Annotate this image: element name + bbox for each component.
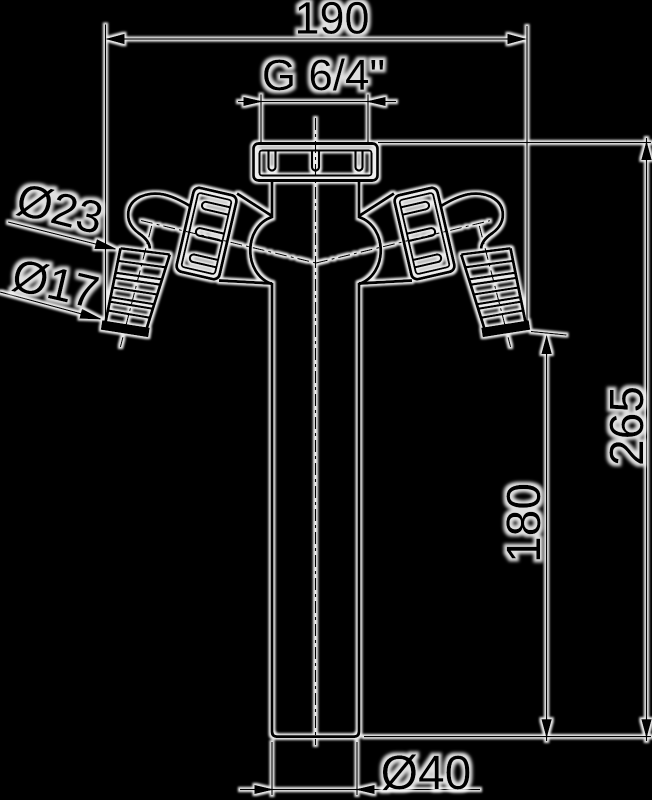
svg-text:265: 265	[601, 386, 652, 466]
svg-text:Ø23: Ø23	[11, 173, 108, 244]
svg-text:190: 190	[294, 0, 369, 44]
svg-text:180: 180	[498, 483, 551, 563]
svg-text:Ø17: Ø17	[7, 248, 103, 318]
svg-text:G 6/4": G 6/4"	[262, 51, 385, 100]
svg-text:Ø40: Ø40	[381, 747, 472, 800]
